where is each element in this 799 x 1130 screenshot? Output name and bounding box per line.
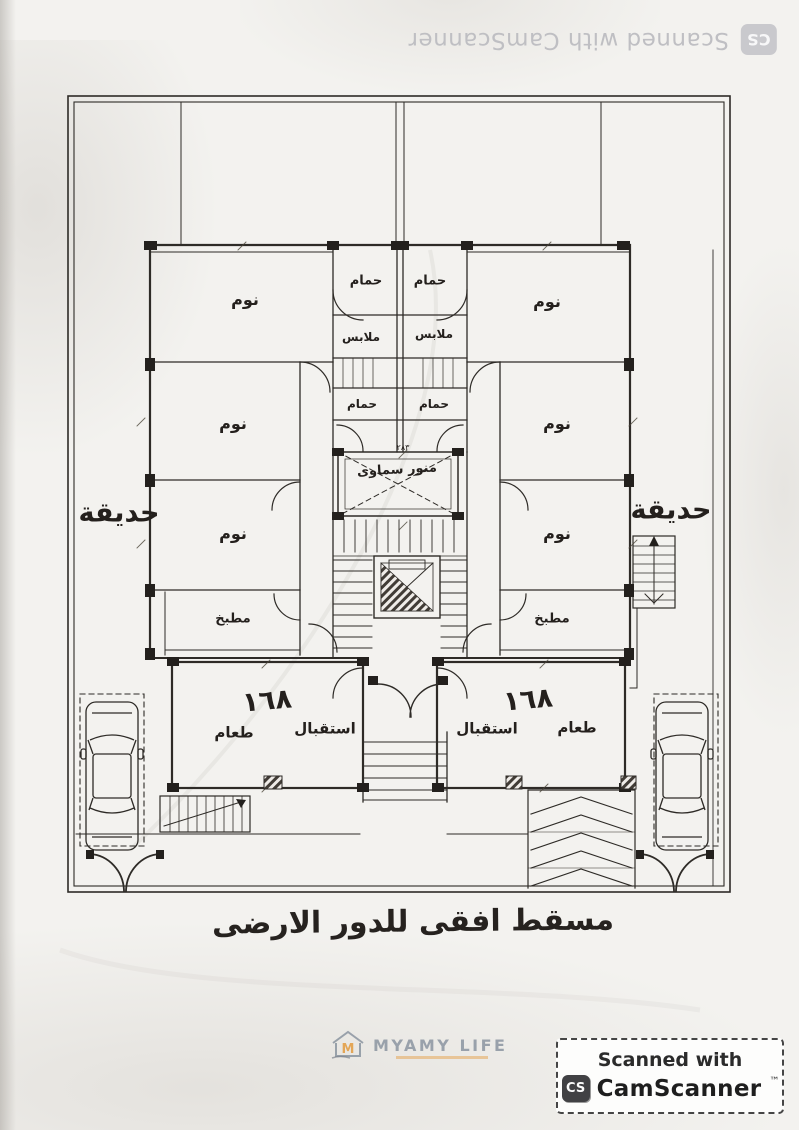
logo-text: MYAMY LIFE xyxy=(373,1036,507,1055)
area-label-skylight: منور سماوى xyxy=(357,461,437,478)
room-label-bedroom: نوم xyxy=(543,416,571,432)
room-label-dressing: ملابس xyxy=(342,331,380,343)
myamy-life-logo: M MYAMY LIFE xyxy=(330,1030,507,1060)
room-label-bedroom: نوم xyxy=(219,416,247,432)
house-logo-icon: M xyxy=(330,1030,366,1060)
room-label-dressing: ملابس xyxy=(415,328,453,340)
room-label-reception: استقبال xyxy=(294,722,356,737)
room-label-bathroom: حمام xyxy=(347,398,377,410)
room-label-kitchen: مطبخ xyxy=(215,613,250,626)
room-label-dining: طعام xyxy=(557,721,596,736)
badge-scanned-with: Scanned with xyxy=(598,1049,743,1071)
area-label-garden: حديقة xyxy=(79,500,160,527)
room-label-bathroom: حمام xyxy=(414,275,447,288)
room-label-bedroom: نوم xyxy=(219,526,247,542)
svg-text:M: M xyxy=(342,1042,355,1057)
floorplan-drawing xyxy=(0,0,799,1130)
badge-brand: CamScanner xyxy=(597,1076,762,1102)
unit-number: ١٦٨ xyxy=(241,685,293,716)
unit-number: ١٦٨ xyxy=(502,684,554,715)
plan-title: مسقط افقى للدور الارضى xyxy=(212,902,614,941)
room-label-kitchen: مطبخ xyxy=(534,613,569,626)
area-label-garden: حديقة xyxy=(631,497,712,524)
room-label-dining: طعام xyxy=(214,726,253,741)
scanned-floorplan-page: CS Scanned with CamScanner xyxy=(0,0,799,1130)
dimension-skylight-width: ٢٨٣ xyxy=(397,444,410,452)
room-label-bedroom: نوم xyxy=(543,526,571,542)
camscanner-icon: CS xyxy=(562,1075,590,1102)
camscanner-badge: Scanned with CS CamScanner ™ xyxy=(556,1038,784,1114)
room-label-bathroom: حمام xyxy=(419,398,449,410)
room-label-bedroom: نوم xyxy=(533,294,561,310)
room-label-reception: استقبال xyxy=(456,722,518,737)
room-label-bedroom: نوم xyxy=(231,292,259,308)
logo-underline xyxy=(396,1056,488,1059)
room-label-bathroom: حمام xyxy=(350,275,383,288)
badge-trademark: ™ xyxy=(769,1076,779,1087)
